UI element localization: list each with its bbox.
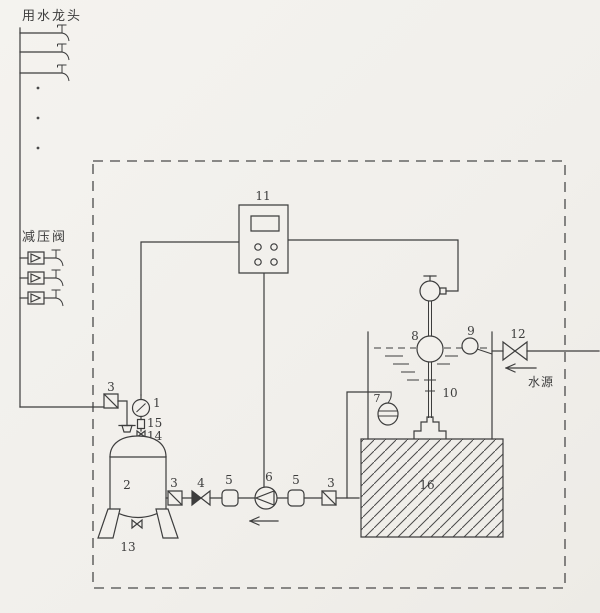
reducing-valve-row xyxy=(20,270,63,286)
faucet-branch-area: 用水龙头 xyxy=(20,9,82,407)
gate-valve-icon xyxy=(503,342,527,360)
diagram-canvas: 用水龙头 减压阀 xyxy=(0,0,600,613)
flow-direction-arrow xyxy=(250,517,278,525)
component-number-15: 15 xyxy=(147,416,162,430)
valve-3-icon xyxy=(104,394,118,408)
component-number-2: 2 xyxy=(123,478,131,492)
tank-inlet-line: 3 xyxy=(20,380,135,432)
faucet-header-label: 用水龙头 xyxy=(22,9,82,24)
pump-line: 3 4 5 6 5 3 xyxy=(166,470,359,525)
drain-valve-icon xyxy=(132,520,142,528)
level-controller-icon xyxy=(420,276,446,301)
water-source-inlet: 12 水源 xyxy=(492,327,599,389)
reducing-valve-row xyxy=(20,250,63,266)
control-panel-box xyxy=(239,205,288,273)
float-ball-icon xyxy=(417,336,443,362)
reducing-valve-row xyxy=(20,290,63,306)
tank-flange-icon xyxy=(119,426,135,433)
component-number-4: 4 xyxy=(197,476,205,490)
component-number-1: 1 xyxy=(153,396,161,410)
component-number-5: 5 xyxy=(225,473,233,487)
component-number-7: 7 xyxy=(374,392,381,405)
tank-leg xyxy=(156,509,178,538)
component-number-6: 6 xyxy=(265,470,273,484)
small-float-icon xyxy=(462,338,478,354)
component-number-12: 12 xyxy=(510,327,525,341)
component-number-11: 11 xyxy=(255,189,270,203)
pressure-tank: 2 13 xyxy=(98,436,178,554)
ellipsis-dots xyxy=(37,87,40,150)
component-number-5: 5 xyxy=(292,473,300,487)
valve-3-icon xyxy=(322,491,336,505)
component-number-3: 3 xyxy=(107,380,115,394)
component-number-3: 3 xyxy=(170,476,178,490)
component-number-13: 13 xyxy=(120,540,135,554)
inlet-drop-pipe xyxy=(118,401,127,426)
pump-icon xyxy=(255,487,277,509)
suction-drop xyxy=(388,392,391,403)
water-source-label: 水源 xyxy=(528,375,554,389)
gauge-cock-icon xyxy=(138,420,145,429)
tank-leg xyxy=(98,509,120,538)
component-number-3: 3 xyxy=(327,476,335,490)
component-number-16: 16 xyxy=(419,478,434,492)
flexible-joint-icon xyxy=(222,490,238,506)
foot-strainer-icon xyxy=(378,403,398,425)
reducing-valve-label: 减压阀 xyxy=(22,230,67,245)
foundation-block: 16 xyxy=(361,439,503,537)
flexible-joint-icon xyxy=(288,490,304,506)
reducing-valve-area: 减压阀 xyxy=(20,230,67,306)
wire-to-gauge xyxy=(141,242,239,395)
component-number-10: 10 xyxy=(442,386,457,400)
control-panel: 11 xyxy=(239,189,288,273)
valve-3-icon xyxy=(168,491,182,505)
component-number-9: 9 xyxy=(467,324,475,338)
component-number-8: 8 xyxy=(411,329,419,343)
check-valve-icon xyxy=(192,491,210,505)
source-flow-arrow xyxy=(506,364,536,372)
rod-pedestal xyxy=(414,417,446,439)
